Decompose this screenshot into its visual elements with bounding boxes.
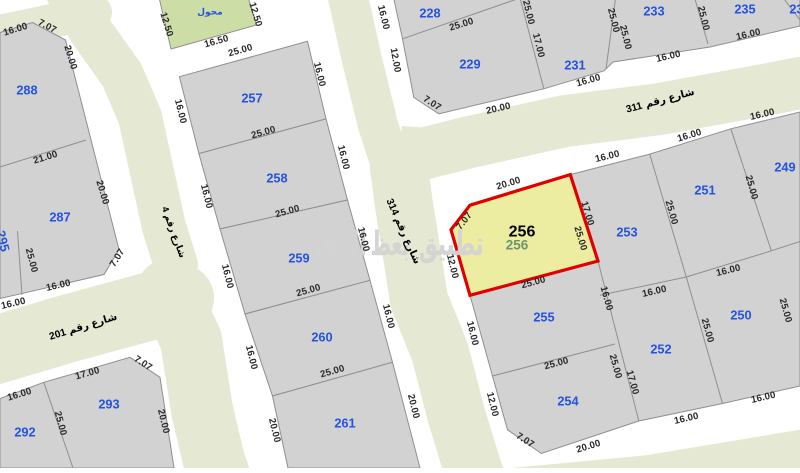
svg-text:292: 292 <box>14 425 35 440</box>
svg-text:258: 258 <box>266 171 287 186</box>
svg-text:256: 256 <box>506 238 529 253</box>
svg-text:293: 293 <box>98 397 119 412</box>
svg-text:229: 229 <box>459 57 480 72</box>
svg-text:288: 288 <box>16 83 37 98</box>
svg-text:261: 261 <box>334 416 355 431</box>
svg-text:250: 250 <box>730 308 751 323</box>
svg-text:287: 287 <box>49 210 70 225</box>
svg-text:254: 254 <box>557 394 579 409</box>
svg-text:251: 251 <box>694 183 715 198</box>
svg-text:257: 257 <box>241 91 262 106</box>
svg-text:237: 237 <box>789 2 800 17</box>
svg-text:231: 231 <box>564 58 585 73</box>
svg-text:259: 259 <box>288 251 309 266</box>
svg-text:249: 249 <box>774 160 795 175</box>
svg-text:252: 252 <box>650 342 671 357</box>
svg-text:255: 255 <box>533 310 554 325</box>
svg-text:228: 228 <box>419 6 440 21</box>
svg-text:253: 253 <box>616 225 637 240</box>
svg-text:260: 260 <box>311 330 332 345</box>
svg-text:235: 235 <box>734 2 755 17</box>
svg-text:233: 233 <box>643 4 664 19</box>
